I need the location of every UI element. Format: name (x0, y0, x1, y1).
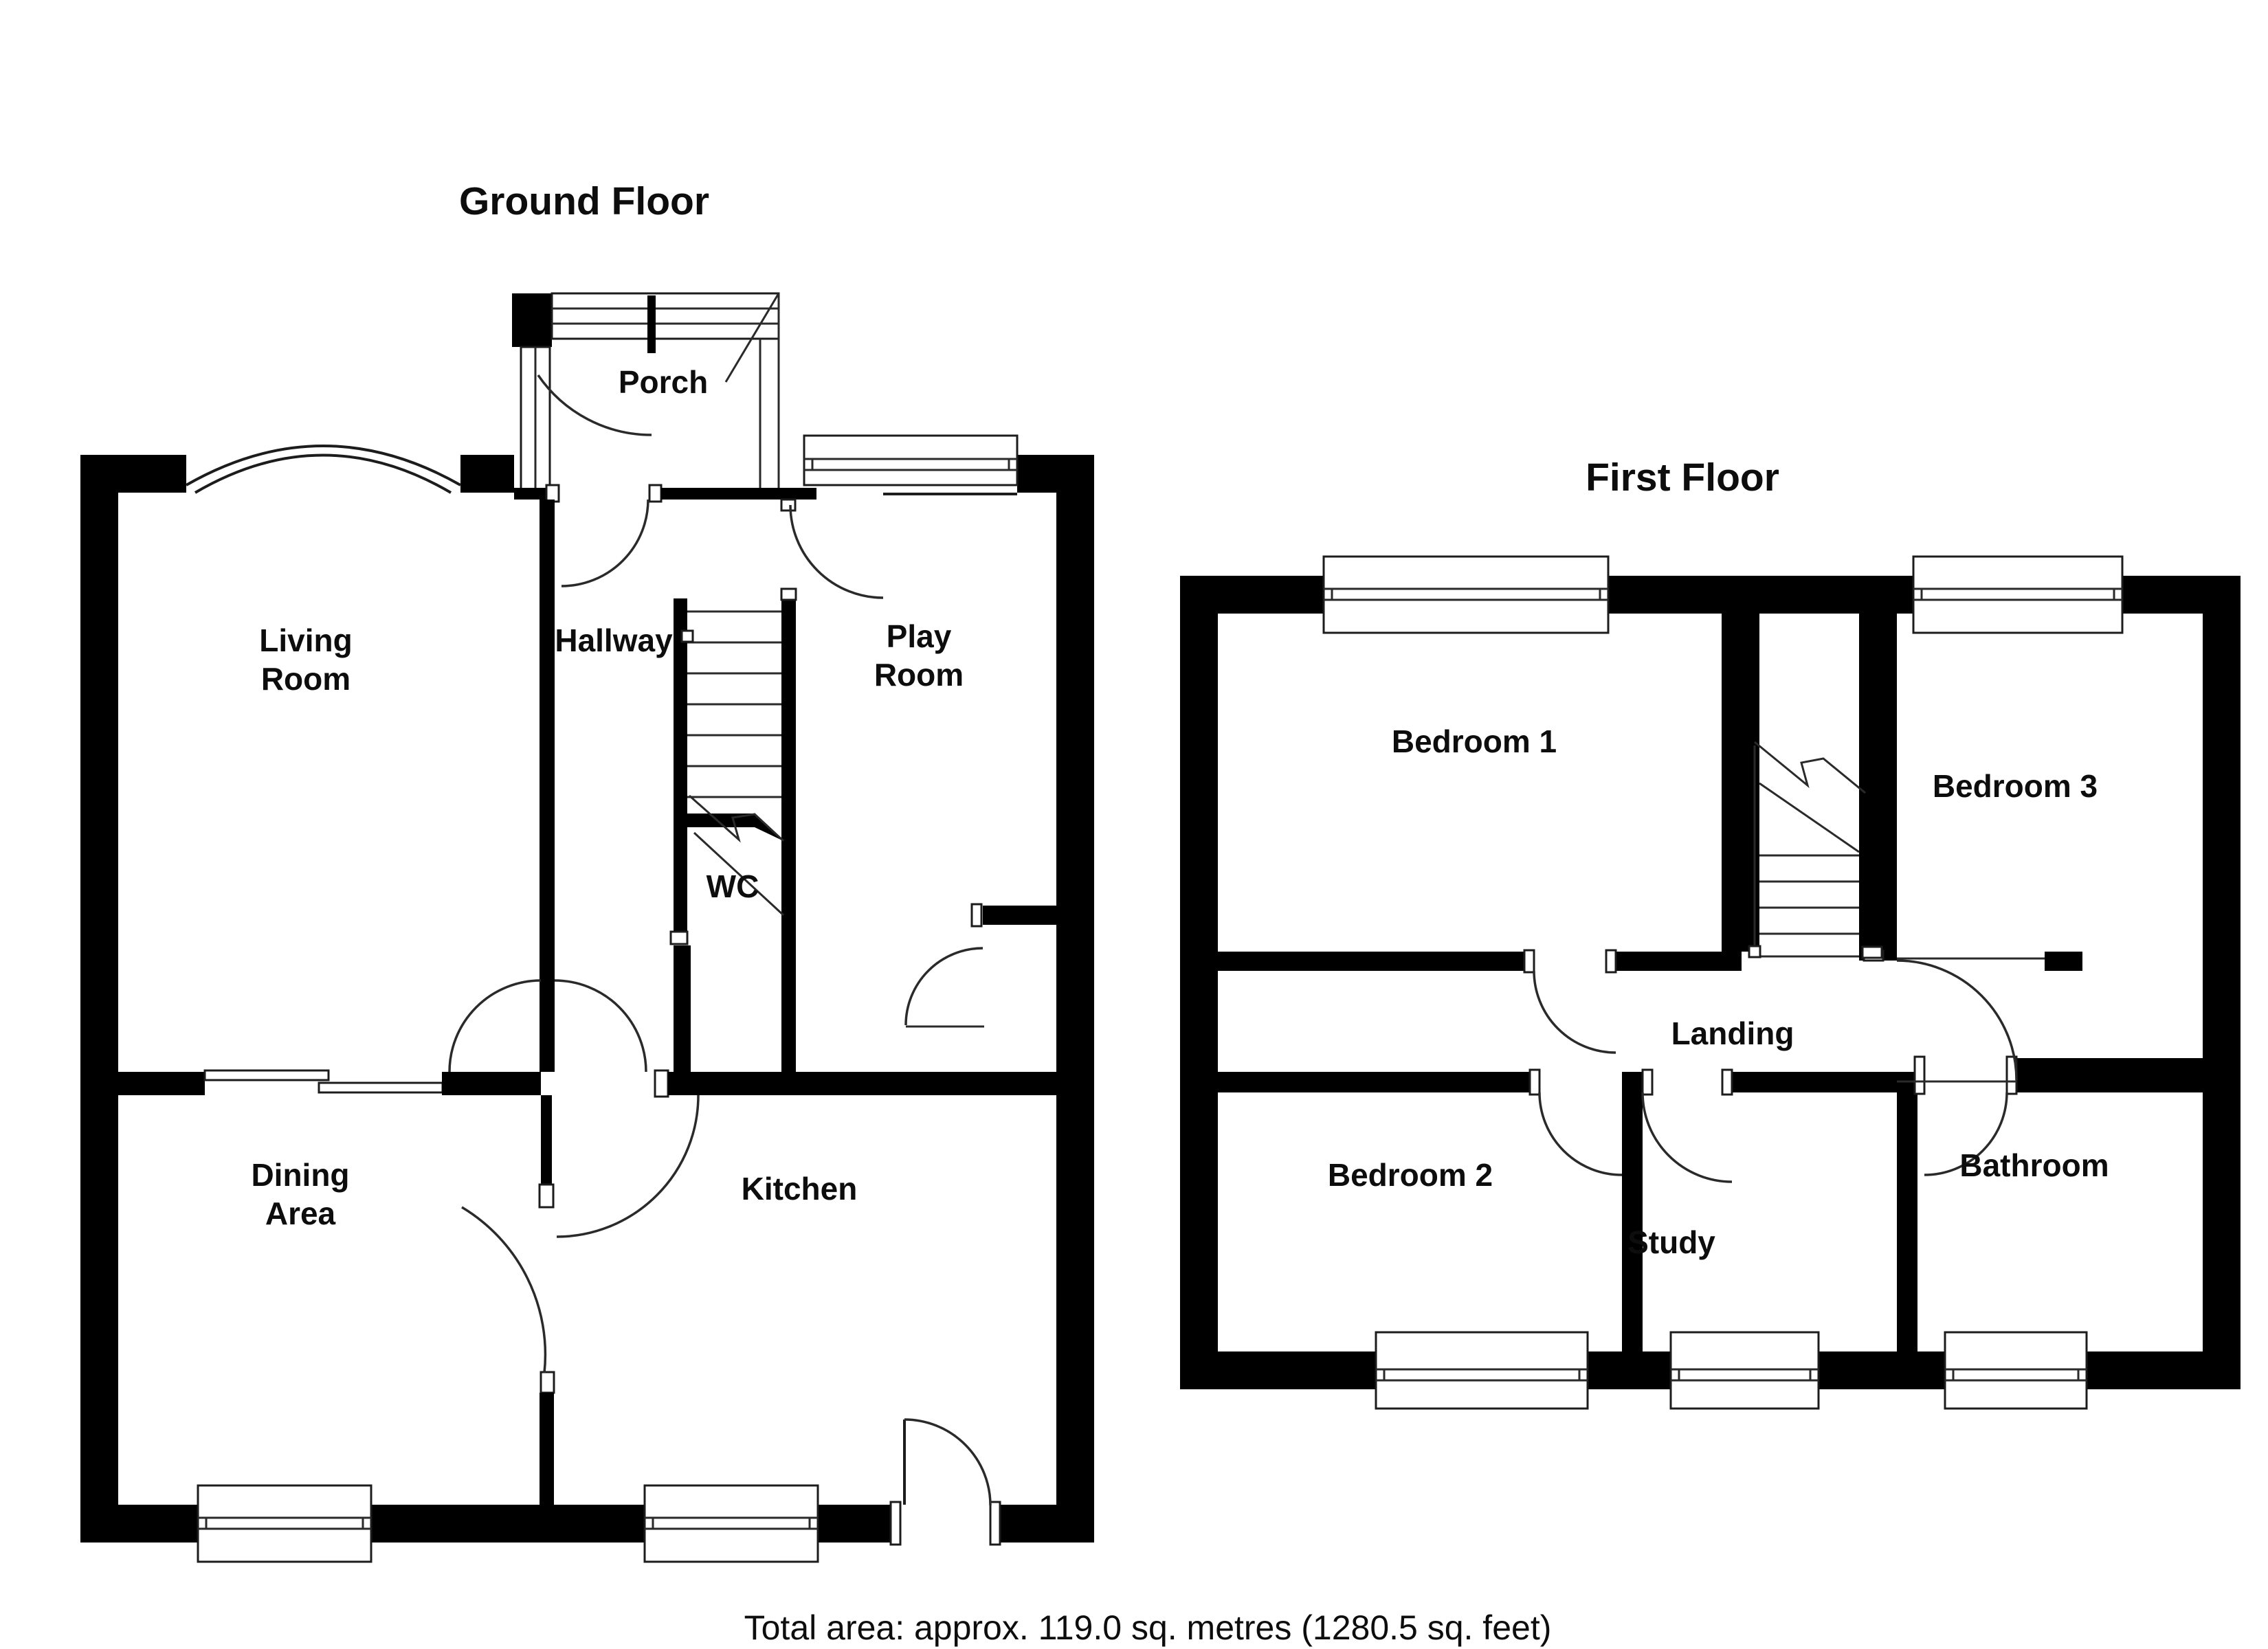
bedroom-1-label: Bedroom 1 (1392, 723, 1557, 759)
living-room-label-line1: Living (259, 622, 352, 658)
dining-area-label-line2: Area (265, 1196, 336, 1231)
wc-label: WC (707, 868, 759, 904)
floor-plan-page: Ground Floor Porch Living Room Hallway P… (0, 0, 2268, 1649)
floor-plan-image: Ground Floor Porch Living Room Hallway P… (0, 0, 2268, 1649)
first-floor-plan: First Floor Bedroom 1 Bedroom 3 Bedroom … (1180, 456, 2241, 1409)
bedroom-3-label: Bedroom 3 (1933, 768, 2098, 804)
landing-label: Landing (1671, 1016, 1794, 1051)
ground-floor-title: Ground Floor (459, 179, 709, 223)
ground-floor-top-wall-details (514, 436, 1017, 598)
first-floor-title: First Floor (1586, 456, 1779, 500)
living-room-label-line2: Room (261, 661, 351, 697)
dining-area-label-line1: Dining (251, 1157, 349, 1193)
hallway-label: Hallway (555, 622, 673, 658)
study-label: Study (1627, 1224, 1715, 1260)
first-floor-door-swings (1534, 961, 2016, 1182)
play-room-label-line2: Room (874, 657, 964, 693)
bathroom-label: Bathroom (1959, 1147, 2109, 1183)
ground-floor-door-swings (449, 980, 698, 1373)
total-area-caption: Total area: approx. 119.0 sq. metres (12… (744, 1608, 1552, 1647)
bedroom-2-label: Bedroom 2 (1328, 1157, 1493, 1193)
kitchen-label: Kitchen (742, 1171, 858, 1207)
living-room-arch (186, 446, 460, 493)
ground-floor-plan: Ground Floor Porch Living Room Hallway P… (80, 179, 1094, 1562)
porch-label: Porch (619, 364, 708, 400)
footer: Total area: approx. 119.0 sq. metres (12… (744, 1608, 1552, 1647)
first-floor-outer-walls (1180, 576, 2241, 1389)
play-room-label-line1: Play (887, 618, 952, 654)
